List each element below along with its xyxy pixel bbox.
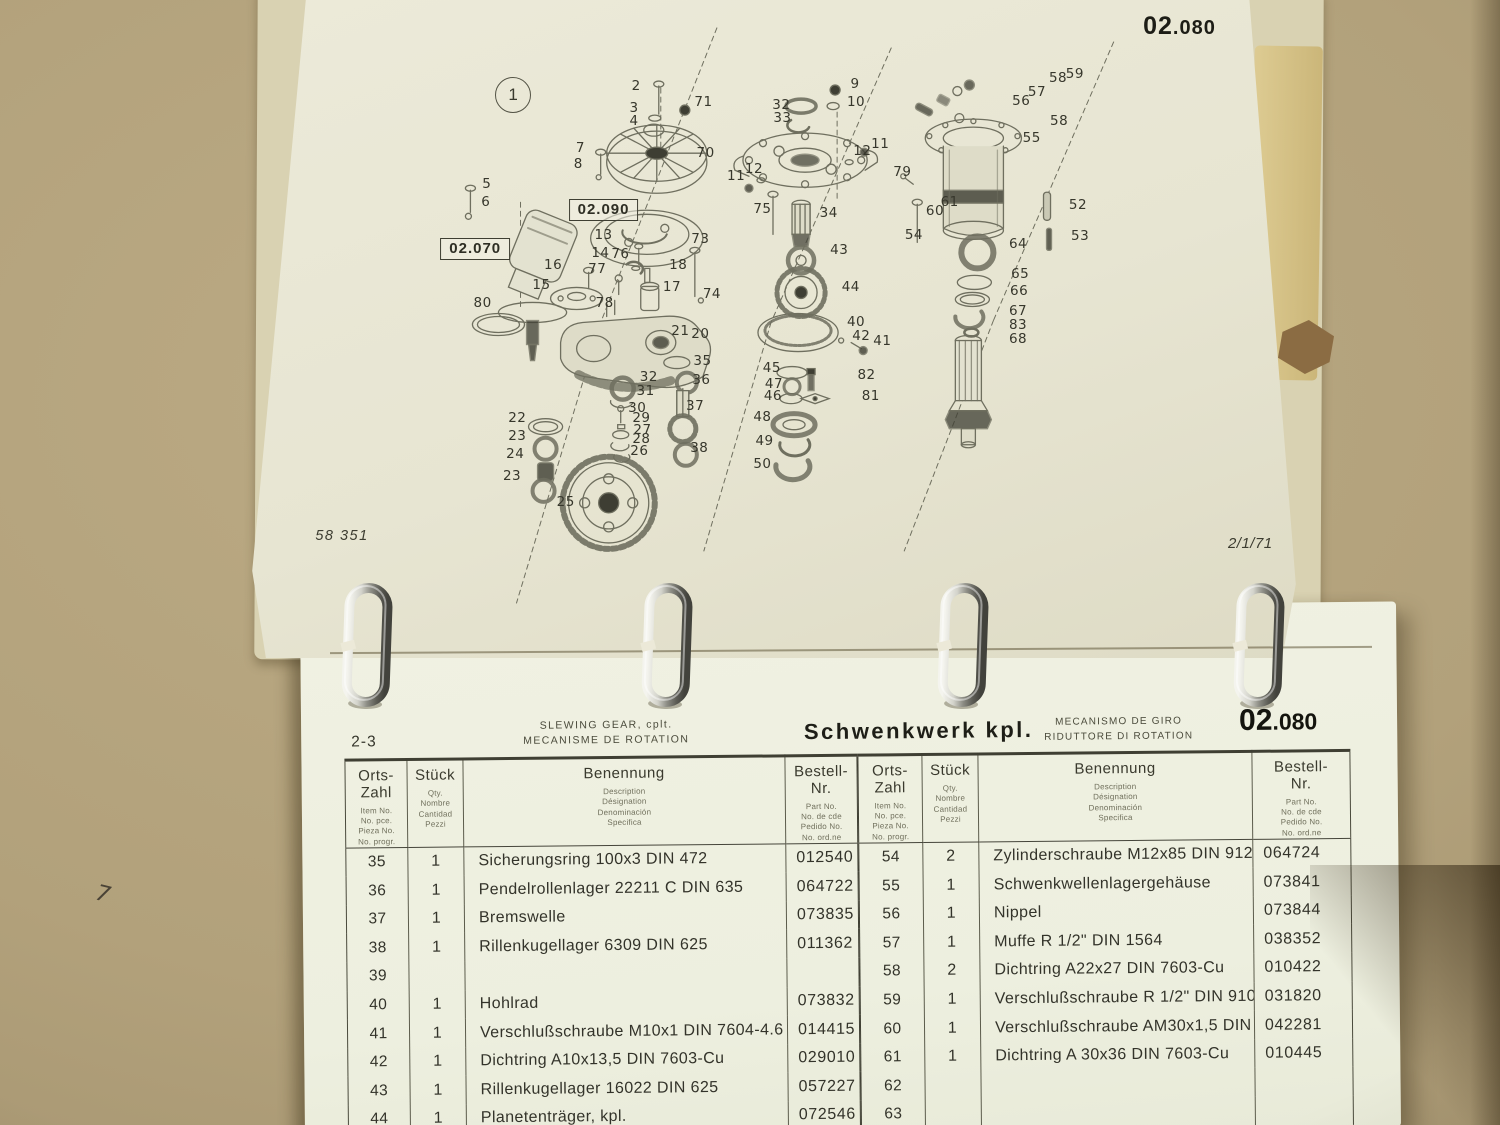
cell-qty: 1 xyxy=(409,933,465,962)
part-callout: 57 xyxy=(1028,84,1046,100)
cell-no: 011362 xyxy=(787,929,859,958)
cell-no: 057227 xyxy=(788,1072,860,1101)
cell-qty: 1 xyxy=(408,876,464,905)
cell-name: Pendelrollenlager 22211 C DIN 635 xyxy=(464,873,786,905)
cell-item: 59 xyxy=(860,986,924,1015)
part-callout: 81 xyxy=(862,388,880,404)
ref-box-02090: 02.090 xyxy=(569,199,639,221)
col-order: Bestell-Nr. Part No.No. de cde Pedido No… xyxy=(785,755,858,844)
cell-item: 41 xyxy=(347,1019,409,1048)
part-callout: 44 xyxy=(842,279,860,295)
part-callout: 60 xyxy=(926,203,944,219)
cell-item: 42 xyxy=(348,1048,410,1077)
part-callout: 11 xyxy=(871,136,889,152)
cell-no: 073835 xyxy=(786,900,858,929)
part-callout: 40 xyxy=(847,314,865,330)
part-callout: 50 xyxy=(753,456,771,472)
cell-qty: 1 xyxy=(408,904,464,933)
cell-name: Hohlrad xyxy=(465,987,787,1019)
part-callout: 59 xyxy=(1066,66,1084,82)
cell-item: 36 xyxy=(346,876,408,905)
cell-item: 58 xyxy=(860,957,924,986)
part-callout: 13 xyxy=(594,227,612,243)
title-fr: MECANISME DE ROTATION xyxy=(451,732,761,750)
cell-no: 073832 xyxy=(787,986,859,1015)
part-callout: 31 xyxy=(637,383,655,399)
part-callout: 45 xyxy=(763,360,781,376)
cell-name: Zylinderschraube M12x85 DIN 912-8.8 xyxy=(979,840,1253,871)
col-name: Benennung DescriptionDésignation Denomin… xyxy=(463,756,786,847)
binder-ring xyxy=(638,579,697,718)
part-callout: 12 xyxy=(853,143,871,159)
part-callout: 79 xyxy=(893,164,911,180)
col-name: Benennung DescriptionDésignation Denomin… xyxy=(978,751,1253,842)
part-callout: 20 xyxy=(691,326,709,342)
cell-qty: 1 xyxy=(410,1104,466,1125)
part-callout: 9 xyxy=(850,76,859,92)
col-order: Bestell-Nr. Part No.No. de cde Pedido No… xyxy=(1252,750,1351,839)
part-callout: 58 xyxy=(1050,113,1068,129)
cell-name: Dichtring A 30x36 DIN 7603-Cu xyxy=(981,1040,1255,1071)
part-callout: 34 xyxy=(820,205,838,221)
part-callout: 22 xyxy=(508,410,526,426)
cell-no: 072546 xyxy=(788,1101,860,1125)
part-callout: 46 xyxy=(764,388,782,404)
diagram-callouts: 2347178705613141676777318151774807891032… xyxy=(248,0,1300,658)
part-callout: 37 xyxy=(686,398,704,414)
part-callout: 12 xyxy=(745,161,763,177)
part-callout: 21 xyxy=(671,323,689,339)
part-callout: 55 xyxy=(1023,130,1041,146)
cell-qty: 1 xyxy=(409,1019,465,1048)
title-it: RIDUTTORE DI ROTATION xyxy=(1001,728,1236,745)
cell-item: 54 xyxy=(859,843,923,872)
cell-item: 43 xyxy=(348,1076,410,1105)
cell-no: 014415 xyxy=(787,1015,859,1044)
col-item: Orts-Zahl Item No.No. pce. Pieza No.No. … xyxy=(345,759,408,848)
part-callout: 68 xyxy=(1009,331,1027,347)
cell-qty: 1 xyxy=(924,985,980,1014)
part-callout: 82 xyxy=(857,367,875,383)
cell-name: Muffe R 1/2" DIN 1564 xyxy=(980,925,1254,956)
cell-name: Nippel xyxy=(979,897,1253,928)
part-callout: 8 xyxy=(574,156,583,172)
parts-table: Orts-Zahl Item No.No. pce. Pieza No.No. … xyxy=(344,749,1354,1125)
cell-name xyxy=(981,1068,1255,1099)
part-callout: 11 xyxy=(727,168,745,184)
cell-item: 61 xyxy=(861,1043,925,1072)
cell-no xyxy=(787,958,859,987)
part-callout: 76 xyxy=(611,246,629,262)
cell-no: 029010 xyxy=(788,1043,860,1072)
part-callout: 36 xyxy=(692,372,710,388)
cell-name xyxy=(981,1097,1255,1125)
title-en-fr: SLEWING GEAR, cplt. MECANISME DE ROTATIO… xyxy=(451,717,761,750)
cell-qty: 1 xyxy=(925,1042,981,1071)
part-callout: 38 xyxy=(690,440,708,456)
cell-qty: 2 xyxy=(924,957,980,986)
cell-qty xyxy=(925,1099,981,1125)
cell-name: Rillenkugellager 16022 DIN 625 xyxy=(466,1073,788,1105)
part-callout: 48 xyxy=(753,409,771,425)
part-callout: 14 xyxy=(591,245,609,261)
cell-name: Verschlußschraube AM30x1,5 DIN 7604-4.6 xyxy=(980,1011,1254,1042)
binder-ring xyxy=(338,579,397,718)
cell-qty xyxy=(409,961,465,990)
cell-item: 38 xyxy=(347,933,409,962)
cell-qty xyxy=(925,1071,981,1100)
part-callout: 74 xyxy=(703,286,721,302)
part-callout: 41 xyxy=(873,333,891,349)
part-callout: 71 xyxy=(694,94,712,110)
cell-item: 62 xyxy=(861,1071,925,1100)
part-callout: 73 xyxy=(691,231,709,247)
part-callout: 32 xyxy=(640,369,658,385)
cell-name: Verschlußschraube M10x1 DIN 7604-4.6 xyxy=(465,1016,787,1048)
sheet-ref: 2-3 xyxy=(351,733,377,751)
parts-table-left: Orts-Zahl Item No.No. pce. Pieza No.No. … xyxy=(344,754,861,1125)
part-callout: 15 xyxy=(532,277,550,293)
cell-item: 35 xyxy=(346,848,408,877)
figure-number-badge: 1 xyxy=(495,77,531,113)
cell-qty: 1 xyxy=(410,1047,466,1076)
cell-no: 064724 xyxy=(1253,839,1351,869)
cell-no: 012540 xyxy=(786,843,858,872)
part-callout: 70 xyxy=(697,145,715,161)
col-qty: Stück Qty.Nombre CantidadPezzi xyxy=(922,754,979,843)
part-callout: 23 xyxy=(508,428,526,444)
part-callout: 7 xyxy=(576,140,585,156)
cell-name: Schwenkwellenlagergehäuse xyxy=(979,868,1253,899)
part-callout: 52 xyxy=(1069,197,1087,213)
part-callout: 6 xyxy=(481,194,490,210)
part-callout: 23 xyxy=(503,468,521,484)
cell-qty: 1 xyxy=(408,847,464,876)
ref-box-02070: 02.070 xyxy=(440,238,510,260)
cell-item: 44 xyxy=(348,1105,410,1125)
part-callout: 78 xyxy=(596,295,614,311)
col-qty: Stück Qty.Nombre CantidadPezzi xyxy=(407,759,464,848)
cell-qty: 1 xyxy=(923,899,979,928)
cell-item: 60 xyxy=(860,1014,924,1043)
part-callout: 58 xyxy=(1049,70,1067,86)
cell-qty: 1 xyxy=(923,871,979,900)
cell-item: 37 xyxy=(346,905,408,934)
cell-qty: 2 xyxy=(923,842,979,871)
binder-ring xyxy=(934,579,993,718)
part-callout: 35 xyxy=(693,353,711,369)
part-callout: 42 xyxy=(852,328,870,344)
cell-name: Dichtring A22x27 DIN 7603-Cu xyxy=(980,954,1254,985)
cell-item: 57 xyxy=(860,928,924,957)
cell-qty: 1 xyxy=(409,990,465,1019)
cell-name: Planetenträger, kpl. xyxy=(466,1101,788,1125)
cell-item: 56 xyxy=(859,900,923,929)
cell-qty: 1 xyxy=(924,1014,980,1043)
cell-name: Verschlußschraube R 1/2" DIN 910-4.6 xyxy=(980,982,1254,1013)
cell-name: Sicherungsring 100x3 DIN 472 xyxy=(464,844,786,876)
part-callout: 53 xyxy=(1071,228,1089,244)
handwritten-mark: 7 xyxy=(93,881,113,909)
part-callout: 64 xyxy=(1009,236,1027,252)
part-callout: 5 xyxy=(482,176,491,192)
part-callout: 18 xyxy=(669,257,687,273)
cell-name: Rillenkugellager 6309 DIN 625 xyxy=(465,930,787,962)
part-callout: 24 xyxy=(506,446,524,462)
part-callout: 17 xyxy=(663,279,681,295)
part-callout: 49 xyxy=(755,433,773,449)
cell-item: 39 xyxy=(347,962,409,991)
cell-item: 40 xyxy=(347,991,409,1020)
cell-name: Dichtring A10x13,5 DIN 7603-Cu xyxy=(466,1044,788,1076)
binder-ring xyxy=(1230,579,1289,718)
corner-shadow xyxy=(1310,865,1500,1125)
page-code-top: 02.080 xyxy=(1143,12,1216,41)
part-callout: 66 xyxy=(1010,283,1028,299)
part-callout: 75 xyxy=(753,201,771,217)
parts-table-right: Orts-Zahl Item No.No. pce. Pieza No.No. … xyxy=(857,749,1354,1125)
revision-date: 2/1/71 xyxy=(1228,535,1273,552)
part-callout: 4 xyxy=(630,113,639,129)
cell-name: Bremswelle xyxy=(464,901,786,933)
part-callout: 26 xyxy=(630,443,648,459)
cell-qty: 1 xyxy=(410,1076,466,1105)
parts-row: 441Planetenträger, kpl.072546 xyxy=(348,1101,860,1125)
part-callout: 2 xyxy=(632,78,641,94)
table-header-row: Orts-Zahl Item No.No. pce. Pieza No.No. … xyxy=(858,750,1351,843)
part-callout: 77 xyxy=(588,261,606,277)
part-callout: 10 xyxy=(847,94,865,110)
table-header-row: Orts-Zahl Item No.No. pce. Pieza No.No. … xyxy=(345,755,858,848)
part-callout: 54 xyxy=(905,227,923,243)
cell-name xyxy=(465,958,787,990)
part-callout: 16 xyxy=(544,257,562,273)
cell-no: 064722 xyxy=(786,872,858,901)
cell-qty: 1 xyxy=(924,928,980,957)
cell-item: 63 xyxy=(861,1100,925,1125)
photo-scene: 7 xyxy=(0,0,1500,1125)
cell-item: 55 xyxy=(859,871,923,900)
parts-row: 63 xyxy=(861,1096,1353,1125)
part-callout: 25 xyxy=(557,494,575,510)
part-callout: 65 xyxy=(1011,266,1029,282)
part-callout: 43 xyxy=(830,242,848,258)
doc-number: 58 351 xyxy=(315,528,368,544)
part-callout: 80 xyxy=(474,295,492,311)
col-item: Orts-Zahl Item No.No. pce. Pieza No.No. … xyxy=(858,755,923,844)
part-callout: 33 xyxy=(773,110,791,126)
title-es-it: MECANISMO DE GIRO RIDUTTORE DI ROTATION xyxy=(1001,713,1236,745)
diagram-page: 2347178705613141676777318151774807891032… xyxy=(248,0,1300,658)
